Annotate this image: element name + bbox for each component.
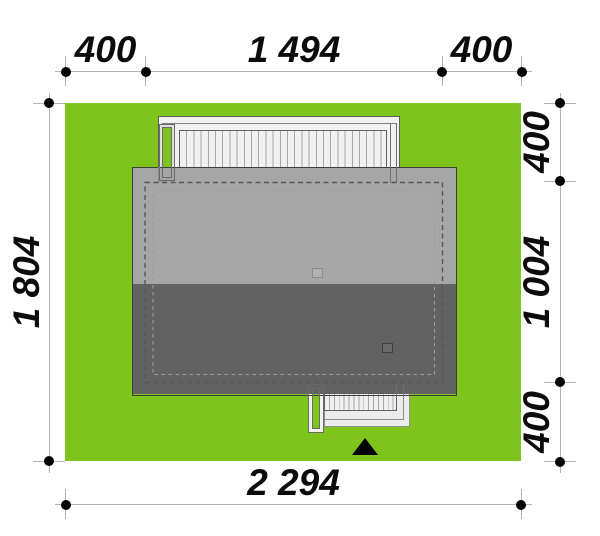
foundation-outline-dashed (153, 191, 435, 375)
dimension-dot (44, 98, 54, 108)
dimension-line-top (55, 71, 532, 72)
dimension-dot (61, 67, 71, 77)
dimension-dot (555, 98, 565, 108)
dim-label-right-bottom: 400 (519, 391, 555, 453)
dim-label-top-center: 1 494 (248, 32, 341, 68)
dimension-dot (437, 67, 447, 77)
dim-label-right-middle: 1 004 (519, 235, 555, 328)
dimension-dot (555, 176, 565, 186)
dimension-line-right (560, 93, 561, 473)
dim-label-bottom: 2 294 (247, 465, 340, 501)
site-plan-canvas: 400 1 494 400 1 804 400 1 004 400 2 294 (0, 0, 600, 536)
dimension-dot (141, 67, 151, 77)
building-outline-layer (0, 0, 600, 536)
dimension-dot (517, 67, 527, 77)
dim-label-top-left: 400 (75, 32, 137, 68)
dim-label-right-top: 400 (519, 111, 555, 173)
wall-outline-dashed (145, 183, 443, 383)
dim-label-top-right: 400 (451, 32, 513, 68)
dimension-line-bottom (55, 504, 532, 505)
dimension-dot (61, 500, 71, 510)
dim-label-left: 1 804 (9, 236, 45, 329)
dimension-line-left (49, 93, 50, 473)
dimension-dot (44, 456, 54, 466)
dimension-dot (555, 377, 565, 387)
dimension-dot (516, 500, 526, 510)
dimension-dot (555, 457, 565, 467)
